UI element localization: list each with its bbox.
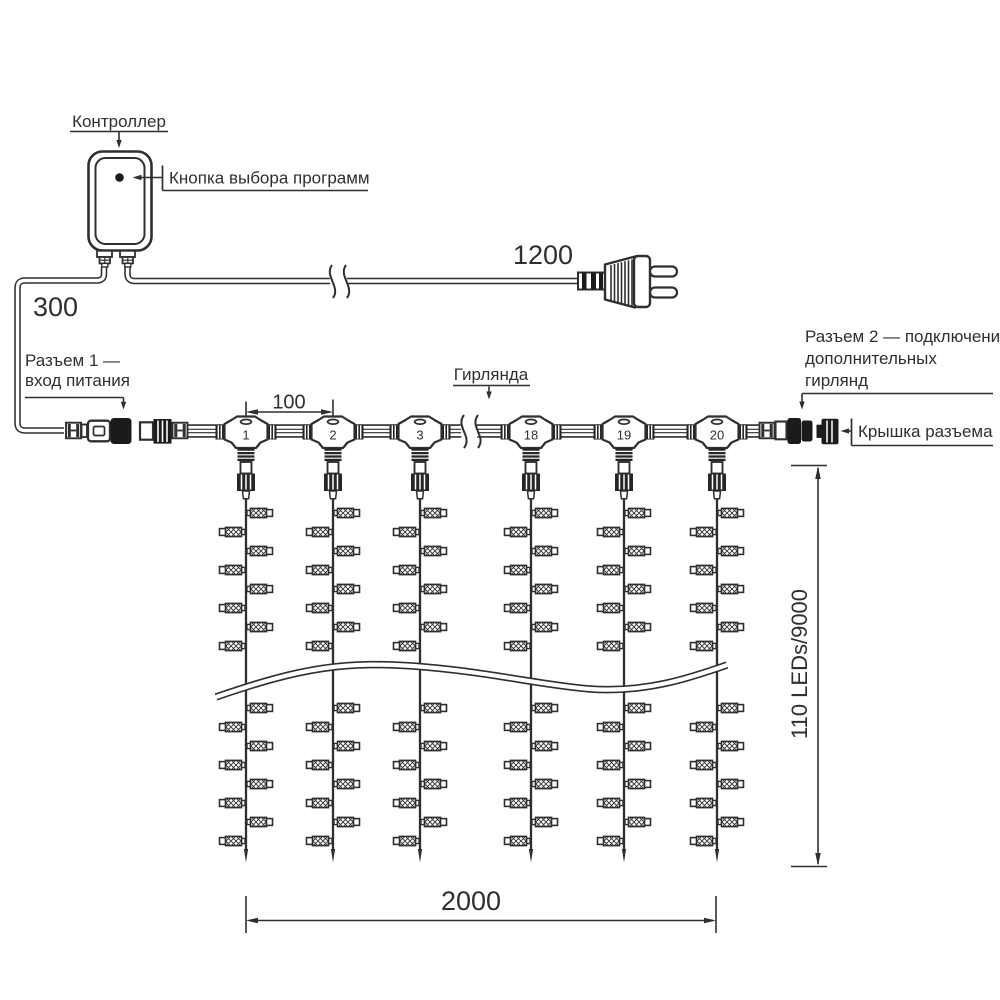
width-dimension-label: 2000 xyxy=(441,886,501,916)
controller xyxy=(89,152,152,268)
input-cable-length-label: 300 xyxy=(33,292,78,322)
t-connectors: 1 2 3 18 19 20 xyxy=(216,417,748,462)
controller-outlet-right xyxy=(120,251,135,267)
cap-annotation: Крышка разъема xyxy=(841,419,994,446)
connector-2-label-line1: Разъем 2 — подключение xyxy=(805,327,1000,346)
lamp-string xyxy=(598,462,651,863)
lamp-string xyxy=(505,462,558,863)
connector-2 xyxy=(760,418,813,444)
connector-2-annotation: Разъем 2 — подключение дополнительных ги… xyxy=(799,327,1000,410)
plug-prong-top xyxy=(650,267,677,277)
connector-1-label-line1: Разъем 1 — xyxy=(25,351,120,370)
connector-2-label-line3: гирлянд xyxy=(805,371,868,390)
drop-number-3: 3 xyxy=(416,428,423,443)
spacing-dimension-label: 100 xyxy=(272,392,305,414)
controller-annotation: Контроллер xyxy=(70,112,168,148)
plug-prong-bottom xyxy=(650,288,677,298)
connector-1-female xyxy=(140,419,188,444)
connector-1-annotation: Разъем 1 — вход питания xyxy=(25,351,130,410)
program-button-label: Кнопка выбора программ xyxy=(169,169,370,188)
lamp-string xyxy=(220,462,273,863)
wave-cable xyxy=(216,665,727,697)
connector-1-label-line2: вход питания xyxy=(25,371,130,390)
program-select-button xyxy=(115,173,124,182)
drop-number-1: 1 xyxy=(242,428,249,443)
drop-number-2: 2 xyxy=(329,428,336,443)
garland-label: Гирлянда xyxy=(454,365,529,384)
diagram-canvas: 1 2 3 18 19 20 100 2000 xyxy=(0,0,1000,1000)
drop-number-20: 20 xyxy=(710,428,724,443)
height-dimension-label: 110 LEDs/9000 xyxy=(787,589,812,739)
lamp-strings xyxy=(220,462,744,863)
garland-annotation: Гирлянда xyxy=(453,365,530,400)
power-plug xyxy=(578,256,677,308)
connector-cap-label: Крышка разъема xyxy=(858,422,993,441)
drop-number-19: 19 xyxy=(617,428,631,443)
connector-1-male xyxy=(66,418,132,444)
controller-label: Контроллер xyxy=(72,112,166,131)
lamp-string xyxy=(691,462,744,863)
program-button-annotation: Кнопка выбора программ xyxy=(133,166,370,191)
garland-curtain-diagram: 1 2 3 18 19 20 100 2000 xyxy=(0,0,1000,1000)
connector-2-label-line2: дополнительных xyxy=(805,349,937,368)
plug-power-cable xyxy=(128,264,579,299)
connector-cap xyxy=(817,419,839,445)
drop-number-18: 18 xyxy=(524,428,538,443)
plug-cable-length-label: 1200 xyxy=(513,240,573,270)
controller-outlet-left xyxy=(97,251,112,267)
garland-cable-break xyxy=(460,414,481,449)
